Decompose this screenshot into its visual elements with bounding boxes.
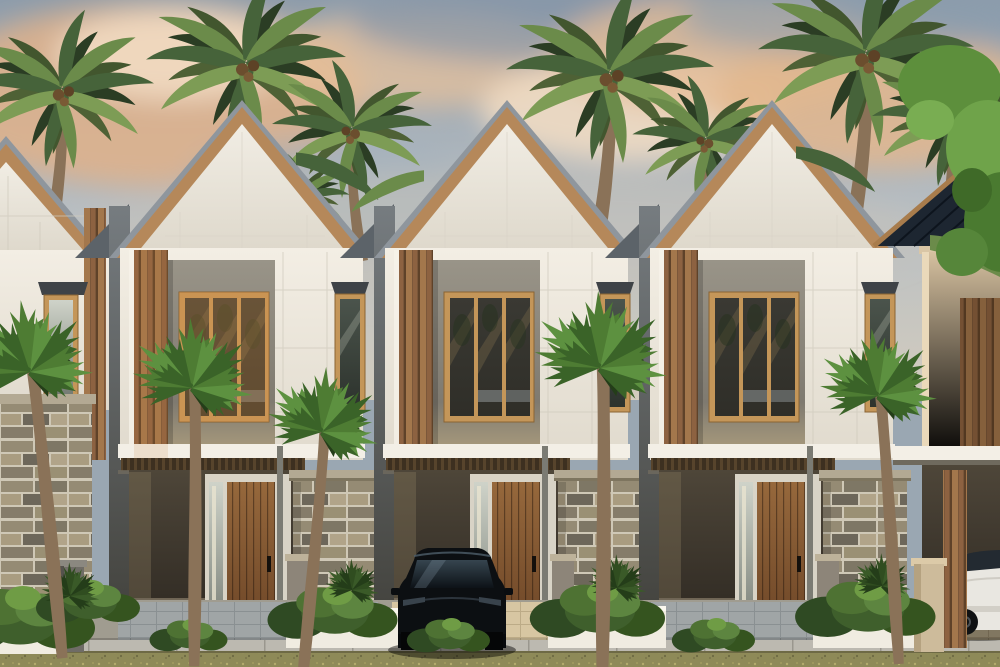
slat-shade	[960, 298, 1000, 462]
side-mirror-left	[391, 588, 400, 595]
narrow-window-awning	[38, 282, 88, 295]
canopy-slab	[893, 446, 1000, 460]
canopy-shadow-line	[893, 460, 1000, 465]
scene-canvas	[0, 0, 1000, 667]
townhouse-rendering: 3D architectural rendering of a row of m…	[0, 0, 1000, 667]
side-mirror-right	[504, 588, 513, 595]
wall-lit-edge	[922, 252, 929, 462]
